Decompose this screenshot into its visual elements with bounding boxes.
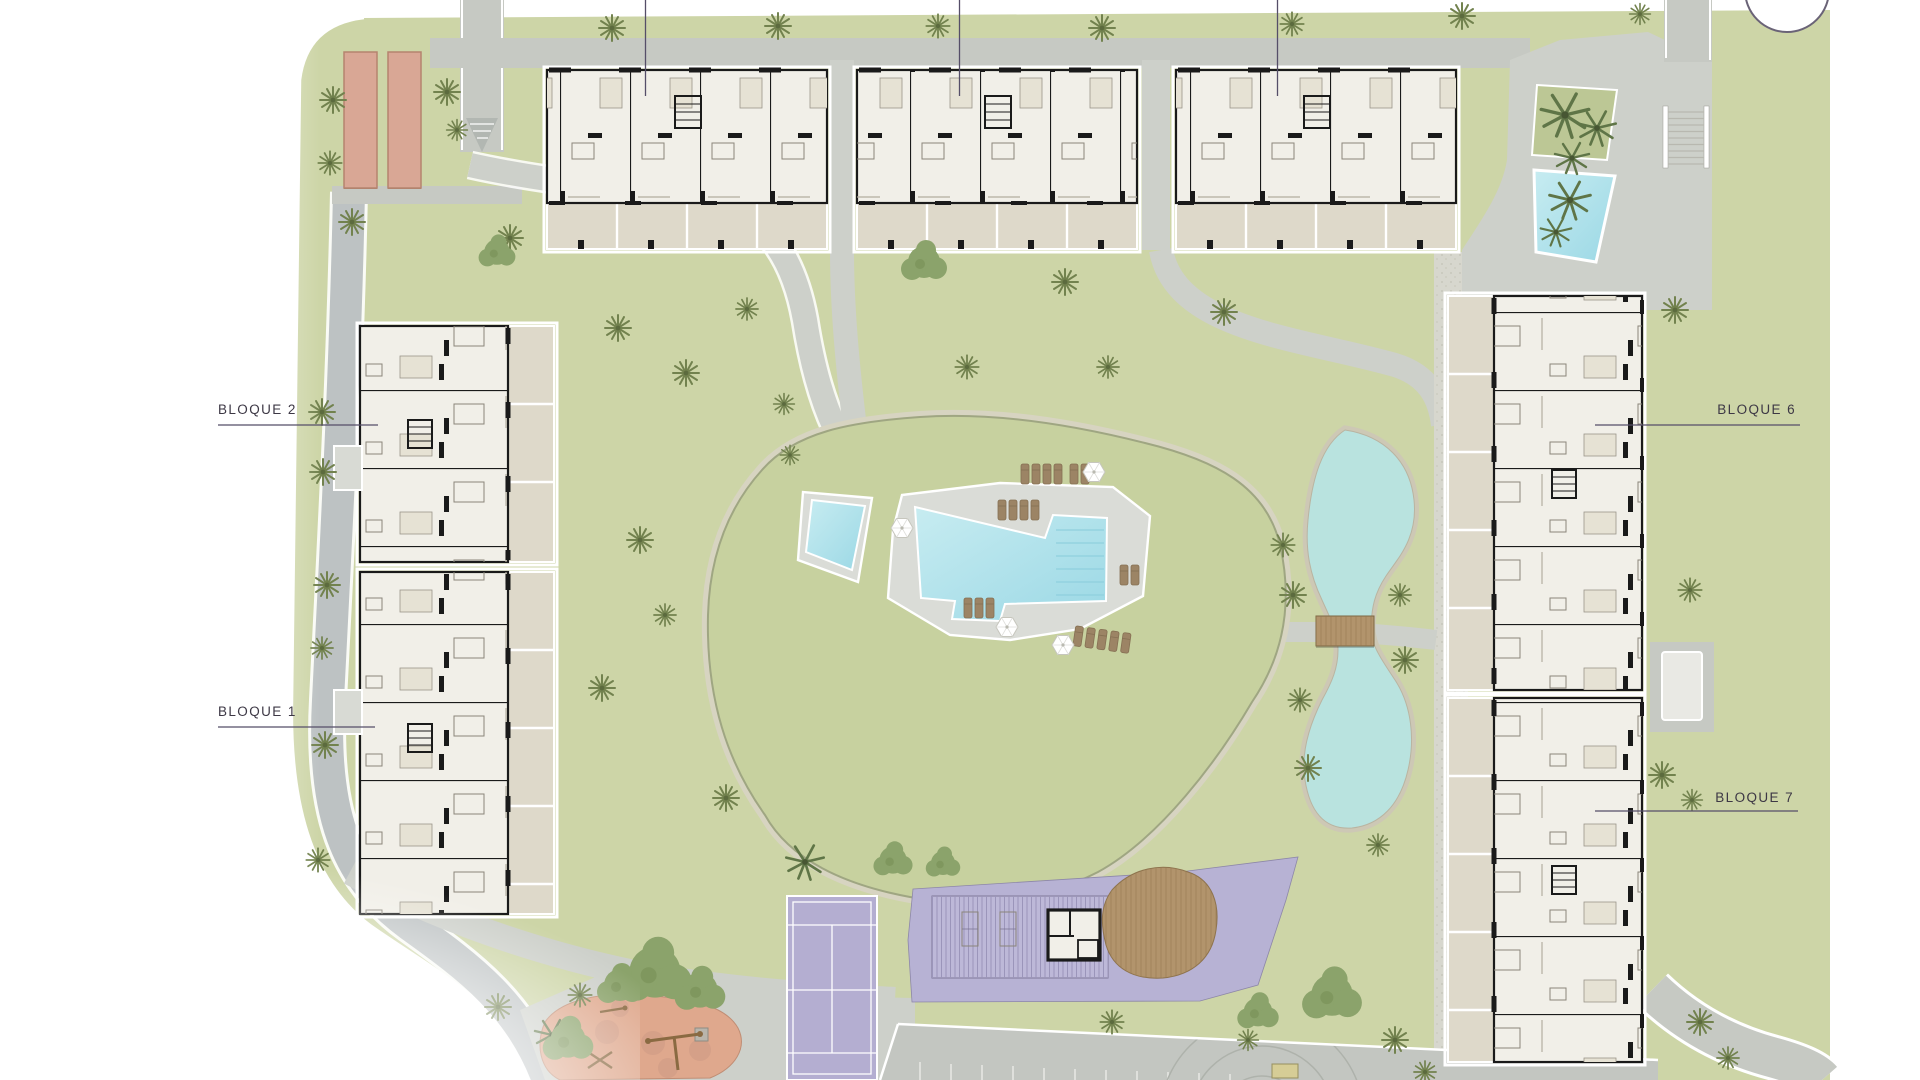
building-top-2 bbox=[854, 67, 1140, 252]
building-top-3 bbox=[1173, 67, 1459, 252]
carport-1 bbox=[344, 52, 377, 188]
top-road-band bbox=[430, 38, 1530, 68]
label-bloque-7-text: BLOQUE 7 bbox=[1715, 790, 1794, 805]
entrance-stub-b2 bbox=[334, 446, 362, 490]
wood-deck-grain bbox=[1102, 867, 1217, 978]
label-bloque-1-text: BLOQUE 1 bbox=[218, 704, 297, 719]
path-to-pool bbox=[842, 250, 855, 428]
club-building bbox=[1048, 910, 1100, 960]
utility-structure bbox=[1662, 652, 1702, 720]
bridge-path-east bbox=[1374, 634, 1436, 640]
building-bloque-6 bbox=[1445, 293, 1645, 693]
wooden-bridge bbox=[1316, 616, 1374, 648]
building-top-1 bbox=[544, 67, 830, 252]
gap-path-1 bbox=[830, 60, 854, 250]
building-bloque-2 bbox=[334, 323, 557, 565]
top-right-road bbox=[1664, 0, 1712, 62]
utility-pad bbox=[1650, 642, 1714, 732]
site-plan-svg: BLOQUE 2 BLOQUE 1 BLOQUE 6 BLOQUE 7 bbox=[0, 0, 1920, 1080]
tennis-court bbox=[787, 896, 877, 1080]
fade-bottom-left bbox=[0, 800, 640, 1080]
label-bloque-6-text: BLOQUE 6 bbox=[1717, 402, 1796, 417]
building-bloque-7 bbox=[1445, 695, 1645, 1065]
label-bloque-2-text: BLOQUE 2 bbox=[218, 402, 297, 417]
site-plan-page: BLOQUE 2 BLOQUE 1 BLOQUE 6 BLOQUE 7 bbox=[0, 0, 1920, 1080]
gap-path-2 bbox=[1142, 60, 1170, 250]
carport-2 bbox=[388, 52, 421, 188]
ramp-road bbox=[460, 0, 504, 152]
